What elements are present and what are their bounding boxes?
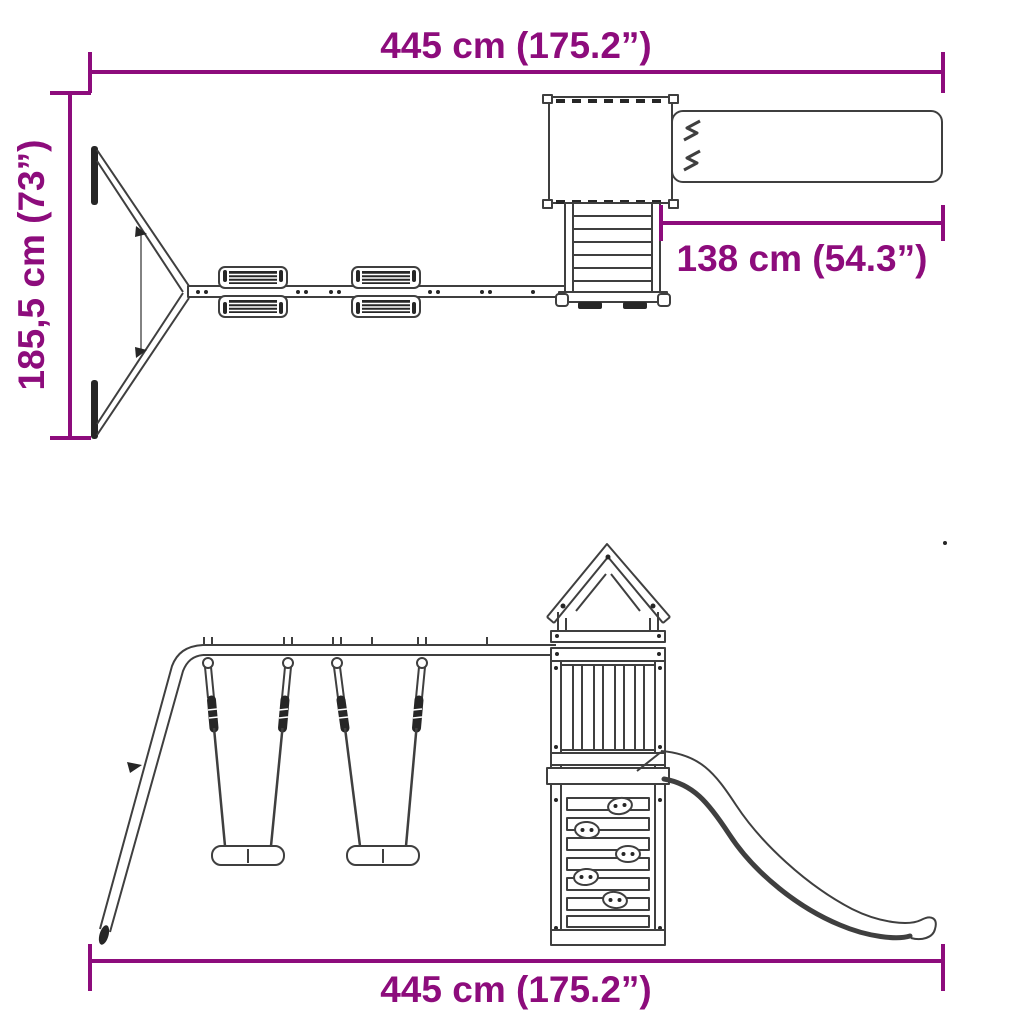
tower-roof-top-view xyxy=(543,95,678,208)
swing-2-side-view xyxy=(332,658,427,865)
slide-side-view xyxy=(637,751,936,939)
side-view-drawing xyxy=(97,541,947,946)
mark-dot xyxy=(943,541,947,545)
dim-overall-width-top: 445 cm (175.2”) xyxy=(90,25,943,93)
diagram-canvas: 445 cm (175.2”) 185,5 cm (73”) 138 cm (5… xyxy=(0,0,1024,1024)
dim-depth-left: 185,5 cm (73”) xyxy=(11,93,91,438)
dim-depth-left-label: 185,5 cm (73”) xyxy=(11,140,52,391)
swing-aframe-top-view xyxy=(91,146,189,439)
playset-dimension-diagram: 445 cm (175.2”) 185,5 cm (73”) 138 cm (5… xyxy=(0,0,1024,1024)
dim-slide-length-label: 138 cm (54.3”) xyxy=(677,238,928,279)
swing-frame-side-view xyxy=(97,637,556,946)
climbing-wall-top-view xyxy=(556,203,670,309)
dim-slide-length: 138 cm (54.3”) xyxy=(661,205,943,279)
dim-overall-width-top-label: 445 cm (175.2”) xyxy=(380,25,652,66)
dim-overall-width-bottom: 445 cm (175.2”) xyxy=(90,944,943,1010)
swing-1-side-view xyxy=(203,658,293,865)
slide-top-view xyxy=(672,111,942,182)
rock-holds xyxy=(573,796,640,910)
tower-side-view xyxy=(547,544,670,945)
dim-overall-width-bottom-label: 445 cm (175.2”) xyxy=(380,969,652,1010)
